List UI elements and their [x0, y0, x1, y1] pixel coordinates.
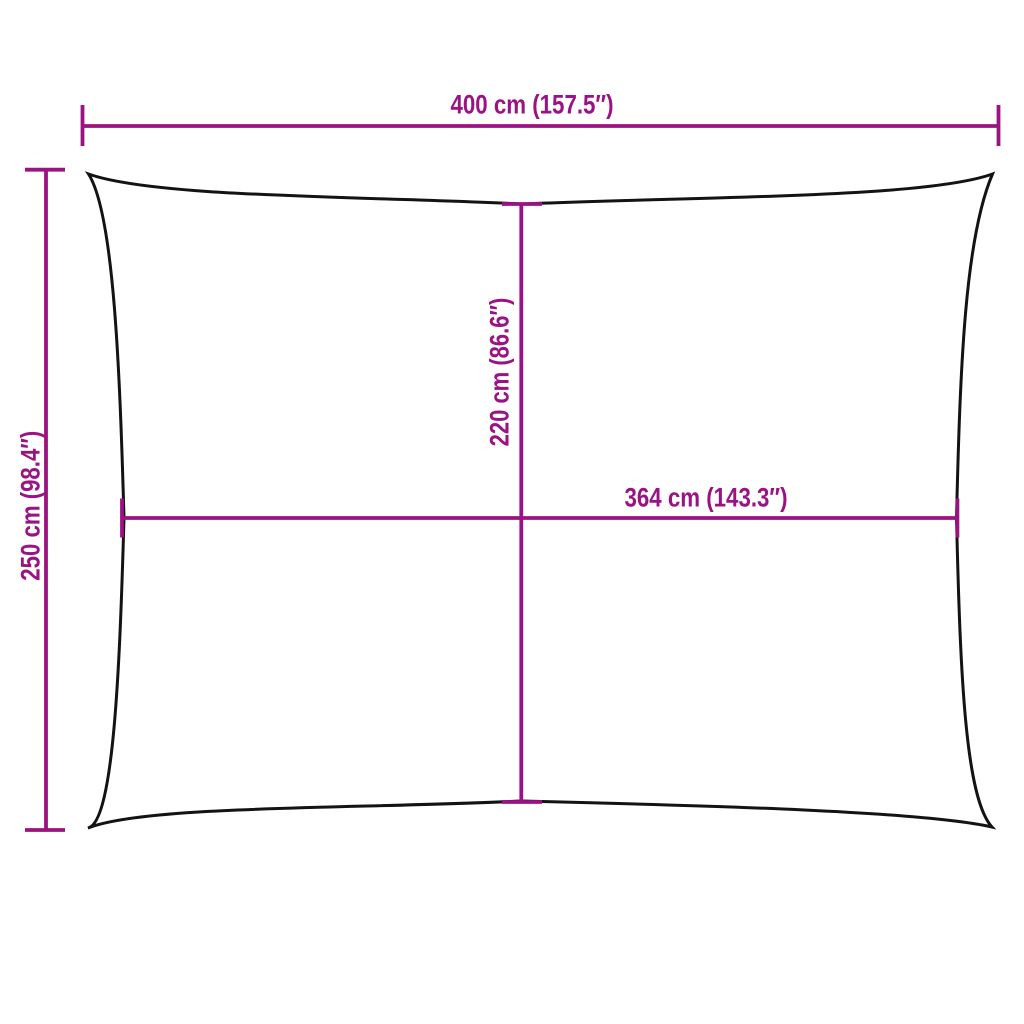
svg-text:250 cm (98.4″): 250 cm (98.4″): [16, 431, 46, 581]
svg-text:364 cm (143.3″): 364 cm (143.3″): [625, 483, 788, 513]
svg-text:220 cm (86.6″): 220 cm (86.6″): [484, 298, 514, 447]
svg-text:400 cm (157.5″): 400 cm (157.5″): [451, 90, 614, 120]
